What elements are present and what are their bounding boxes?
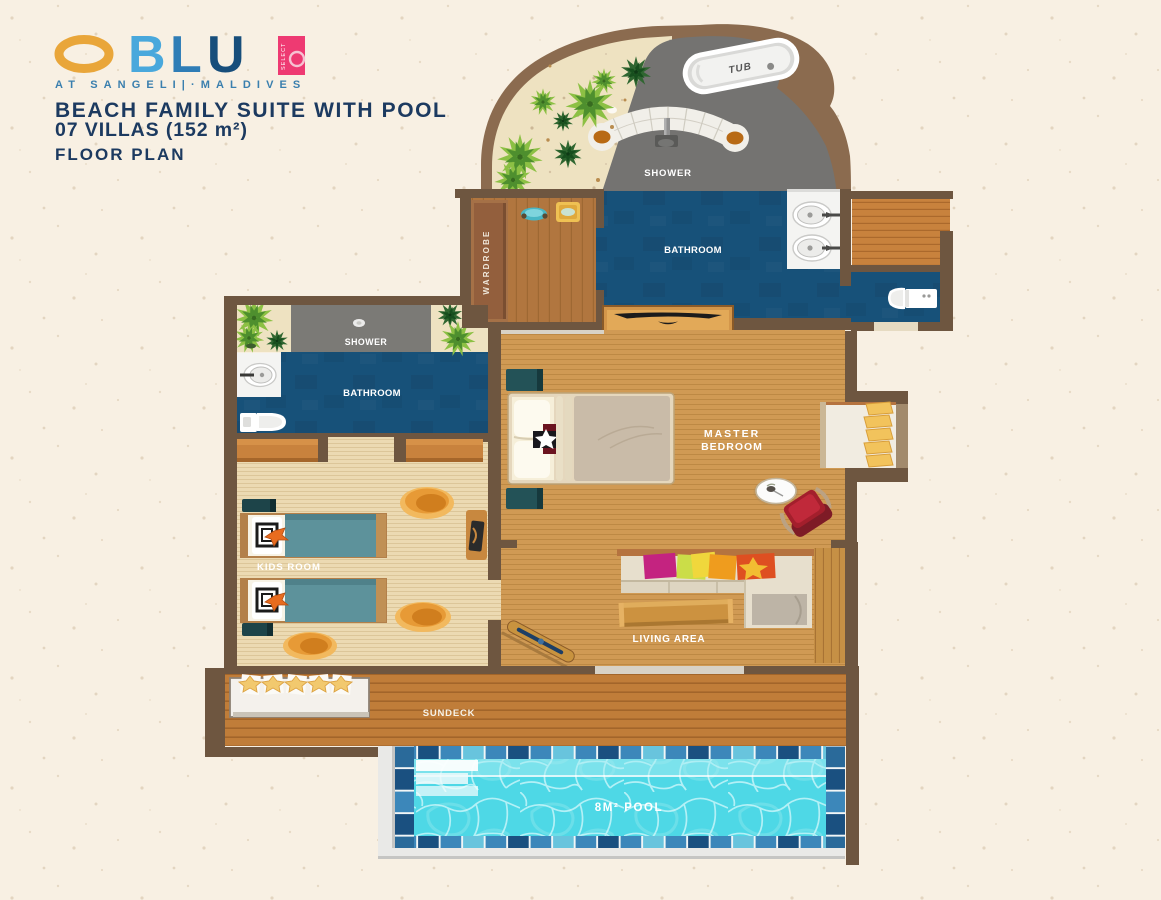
svg-text:8M² POOL: 8M² POOL — [595, 802, 663, 814]
svg-text:B: B — [128, 26, 166, 84]
svg-text:FLOOR PLAN: FLOOR PLAN — [55, 145, 186, 164]
svg-text:SHOWER: SHOWER — [644, 168, 692, 179]
svg-text:L: L — [170, 26, 202, 84]
svg-text:BATHROOM: BATHROOM — [343, 388, 401, 399]
svg-text:AT SANGELI|·MALDIVES: AT SANGELI|·MALDIVES — [55, 79, 306, 91]
svg-text:BEDROOM: BEDROOM — [701, 441, 763, 453]
svg-text:MASTER: MASTER — [704, 428, 760, 440]
svg-text:SELECT: SELECT — [281, 43, 287, 70]
svg-text:LIVING AREA: LIVING AREA — [633, 634, 706, 645]
svg-text:BATHROOM: BATHROOM — [664, 245, 722, 256]
svg-text:KIDS ROOM: KIDS ROOM — [257, 562, 321, 573]
svg-text:WARDROBE: WARDROBE — [482, 229, 491, 294]
svg-text:07 VILLAS (152 m²): 07 VILLAS (152 m²) — [55, 119, 248, 141]
svg-text:U: U — [207, 26, 245, 84]
svg-text:SUNDECK: SUNDECK — [423, 708, 476, 719]
svg-text:SHOWER: SHOWER — [345, 337, 388, 347]
